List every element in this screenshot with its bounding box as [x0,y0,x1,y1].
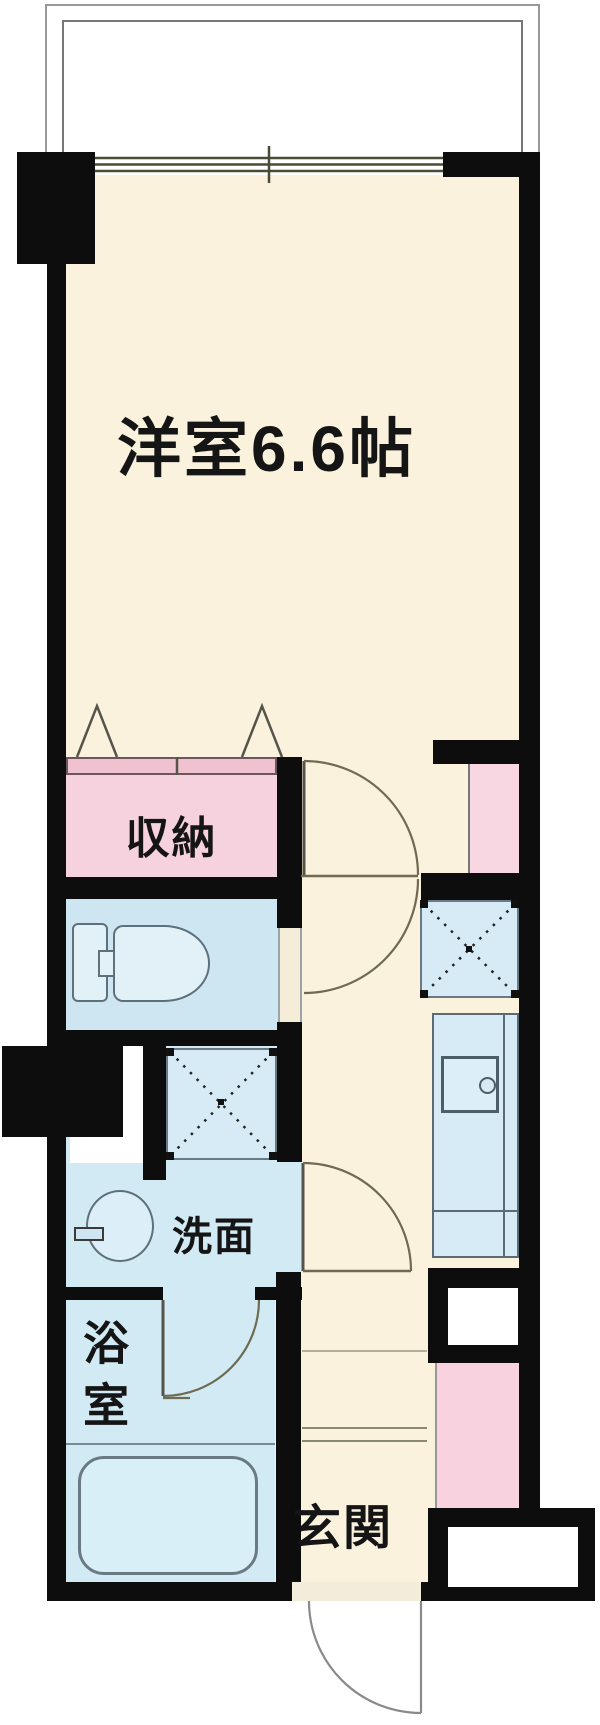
washer-space-washroom-side [166,1048,277,1160]
wall-niche-horizontal [70,1137,143,1163]
wall-bottom [47,1582,292,1601]
washer-space-kitchen-side [420,900,519,998]
wall-hall-vertical-b [277,1022,302,1162]
bathtub-icon [78,1456,258,1575]
toilet-bowl-icon [113,925,210,1002]
wall-mid-left-pillar [2,1046,123,1137]
main-room-label: 洋室6.6帖 [40,398,493,490]
closet-door-track [66,757,277,775]
pipe-space-upper [468,764,519,873]
wall-washer-left [143,1046,166,1180]
wall-hall-vertical-a [277,757,302,928]
wall-stub-upper-right [433,740,519,764]
washroom-door-opening [277,1162,303,1272]
balcony-inner-outline [62,20,523,154]
basin-faucet-icon [74,1227,104,1241]
wash-basin-icon [86,1190,154,1262]
kitchen-faucet-icon [479,1077,496,1094]
entrance-door-threshold [292,1582,421,1601]
bottom-block-window [448,1527,578,1587]
storage-label: 収納 [66,802,277,866]
kitchen-counter [432,1013,519,1258]
bathroom-label: 浴室 [70,1306,136,1456]
washroom-label: 洗面 [158,1204,270,1262]
bathroom-door-opening [163,1287,255,1300]
wall-storage-toilet [47,877,302,899]
kitchen-counter-divider-line [432,1210,519,1212]
toilet-door-opening [278,928,302,1022]
wall-toilet-washroom [47,1030,302,1046]
entrance-door-swing-icon [309,1601,421,1713]
entrance-label: 玄関 [282,1488,404,1558]
wall-right [519,152,540,1582]
floor-plan: 洋室6.6帖 収納 洗面 浴室 玄関 [0,0,600,1725]
entrance-side-cabinet [435,1363,519,1508]
kitchen-counter-edge-line [503,1013,505,1258]
mid-block-window [448,1288,518,1345]
wall-under-pipe-space [421,873,519,900]
wall-washroom-bathroom-left [47,1287,163,1300]
